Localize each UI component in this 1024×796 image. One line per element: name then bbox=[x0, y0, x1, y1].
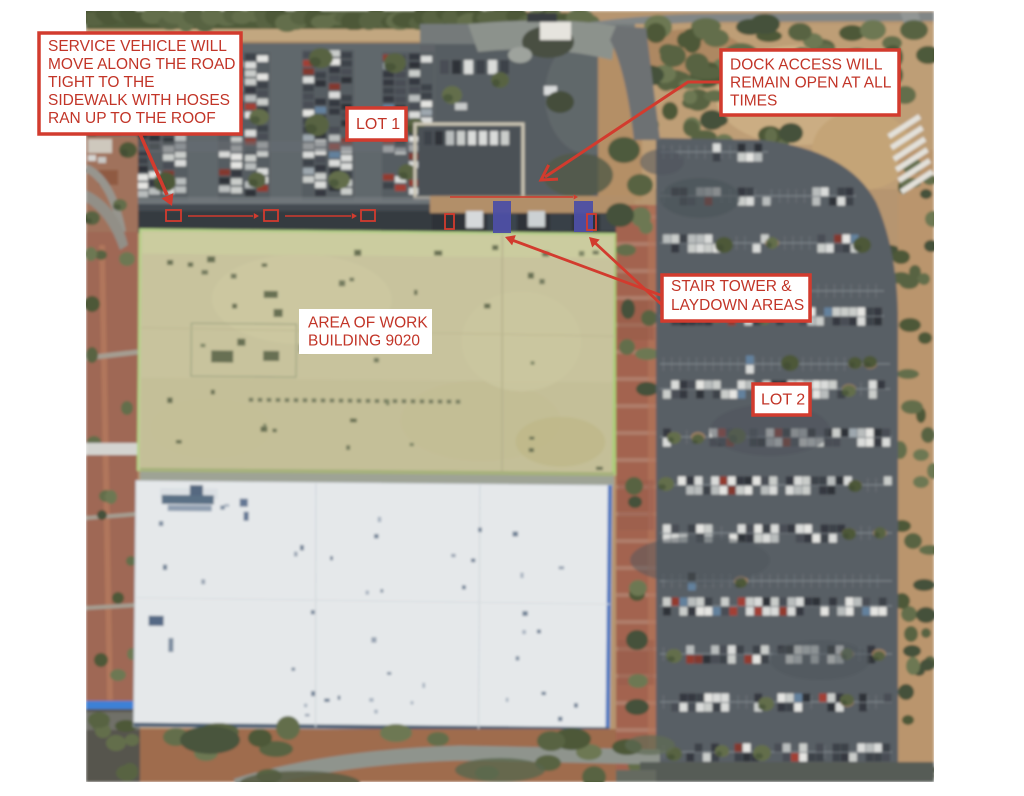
svg-text:RAN UP TO THE ROOF: RAN UP TO THE ROOF bbox=[48, 110, 216, 127]
svg-text:LOT 2: LOT 2 bbox=[761, 392, 805, 409]
svg-text:DOCK ACCESS WILL: DOCK ACCESS WILL bbox=[730, 57, 883, 74]
svg-text:TIGHT TO THE: TIGHT TO THE bbox=[48, 74, 155, 91]
svg-text:MOVE ALONG THE ROAD: MOVE ALONG THE ROAD bbox=[48, 56, 235, 73]
svg-text:STAIR TOWER &: STAIR TOWER & bbox=[671, 278, 792, 295]
svg-text:BUILDING 9020: BUILDING 9020 bbox=[308, 333, 420, 350]
svg-text:SERVICE VEHICLE WILL: SERVICE VEHICLE WILL bbox=[48, 38, 227, 55]
svg-text:LAYDOWN AREAS: LAYDOWN AREAS bbox=[671, 297, 804, 314]
svg-text:LOT 1: LOT 1 bbox=[356, 116, 400, 133]
svg-text:AREA OF WORK: AREA OF WORK bbox=[308, 315, 428, 332]
svg-text:TIMES: TIMES bbox=[730, 93, 777, 110]
svg-text:SIDEWALK WITH HOSES: SIDEWALK WITH HOSES bbox=[48, 92, 230, 109]
svg-text:REMAIN OPEN AT ALL: REMAIN OPEN AT ALL bbox=[730, 75, 892, 92]
